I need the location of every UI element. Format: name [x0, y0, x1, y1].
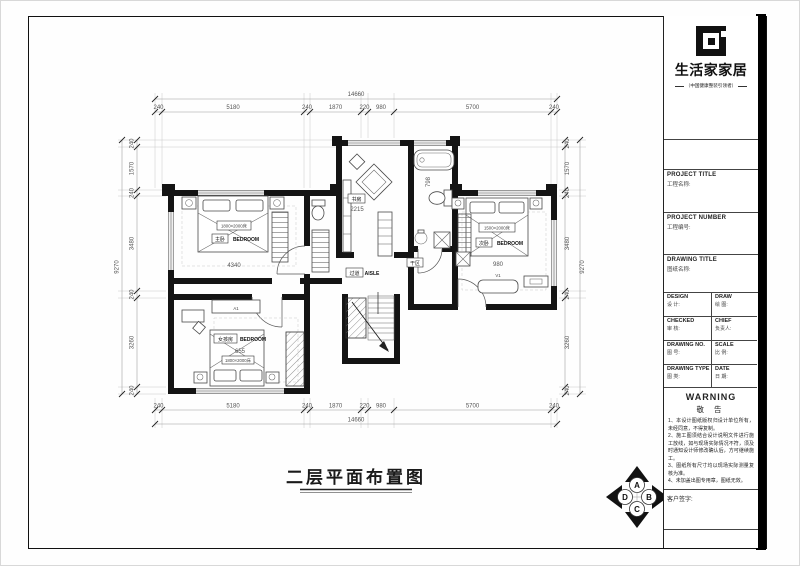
checked-field: CHECKED审 核:: [664, 317, 711, 341]
draw-field: DRAW绘 图:: [711, 293, 757, 317]
design-field: DESIGN设 计:: [664, 293, 711, 317]
warning-item: 4、未加盖出图专用章，图纸无效。: [668, 478, 754, 486]
brand-name: 生活家家居: [664, 60, 758, 80]
drawing-type-field: DRAWING TYPE图 类:: [664, 365, 711, 388]
warning-section: WARNING 敬 告 1、本设计图纸版权归设计单位所有，未经同意，不得复制。 …: [664, 388, 758, 490]
brand-tagline: （中国健康整装引领者）: [686, 83, 737, 89]
chief-field: CHIEF负责人:: [711, 317, 757, 341]
sheet-border: [28, 16, 767, 549]
date-field: DATE日 期:: [711, 365, 757, 388]
warning-item: 1、本设计图纸版权归设计单位所有，未经同意，不得复制。: [668, 418, 754, 433]
project-title-field: PROJECT TITLE 工程名称:: [664, 170, 758, 213]
drawing-sheet: 1466024051802401870220980570024024051802…: [0, 0, 800, 566]
brand-logo-icon: [696, 26, 726, 56]
warning-item: 3、图纸所有尺寸均以现场实际测量复核为准。: [668, 463, 754, 478]
drawing-no-field: DRAWING NO.图 号:: [664, 341, 711, 365]
project-number-field: PROJECT NUMBER 工程编号:: [664, 213, 758, 255]
warning-item: 2、施工图须结合设计说明文件进行施工放线，如与现场实际情况不符，须及时通知设计师…: [668, 433, 754, 463]
signature-field: 客户签字:: [664, 490, 758, 530]
brand-section: 生活家家居 （中国健康整装引领者）: [664, 26, 758, 140]
warning-title-zh: 敬 告: [668, 404, 754, 415]
scale-field: SCALE比 例:: [711, 341, 757, 365]
blank-row: [664, 140, 758, 170]
title-block: 生活家家居 （中国健康整装引领者） PROJECT TITLE 工程名称: PR…: [663, 16, 758, 548]
warning-title-en: WARNING: [668, 392, 754, 402]
drawing-title-field: DRAWING TITLE 图纸名称:: [664, 255, 758, 293]
info-grid: DESIGN设 计: DRAW绘 图: CHECKED审 核: CHIEF负责人…: [664, 293, 758, 388]
